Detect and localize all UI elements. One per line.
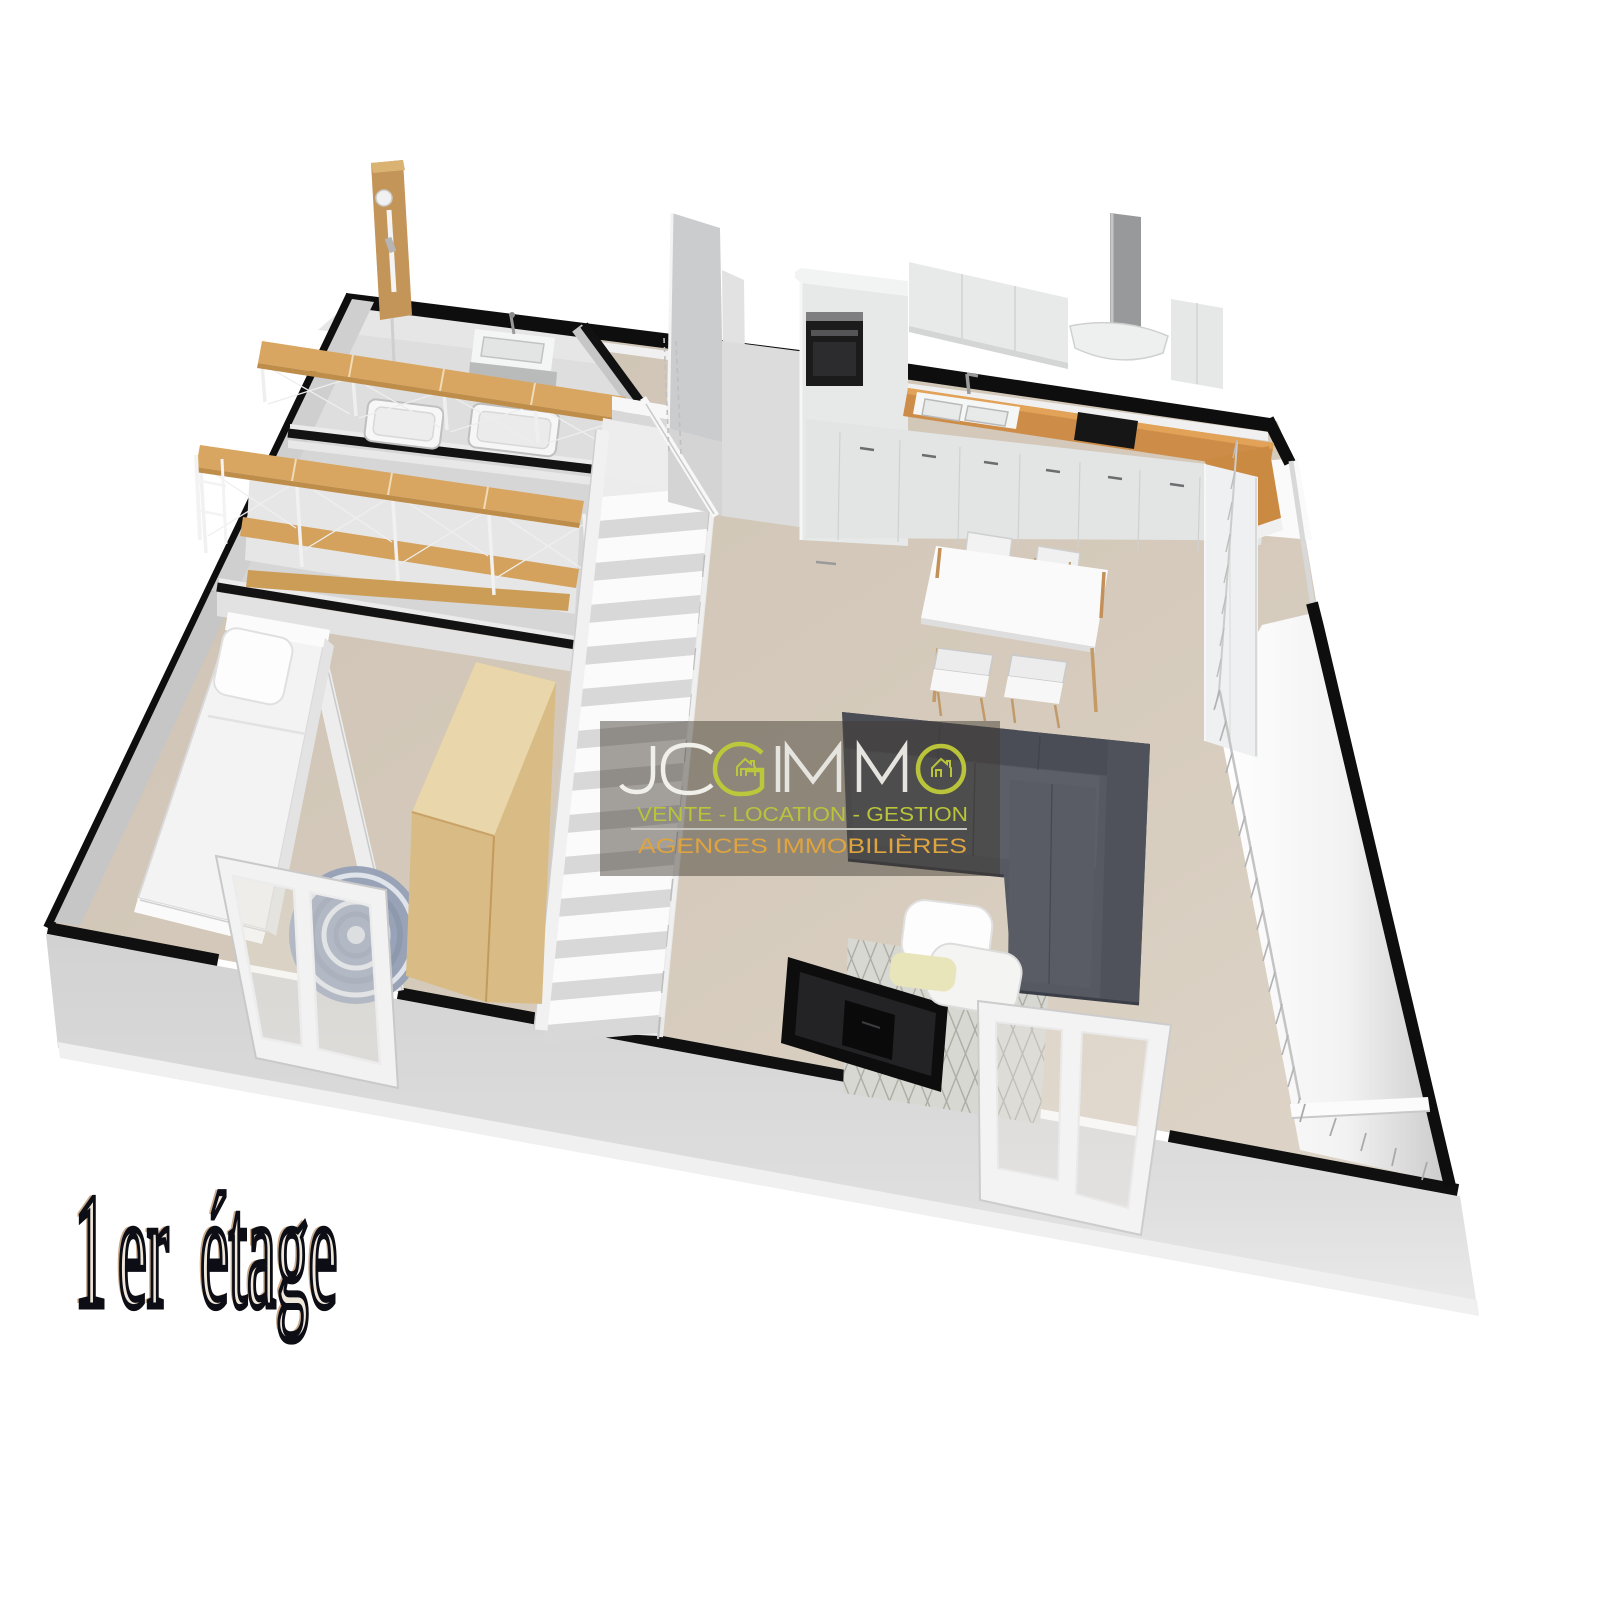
svg-text:VENTE - LOCATION - GESTION: VENTE - LOCATION - GESTION bbox=[637, 804, 968, 826]
svg-text:AGENCES IMMOBILIÈRES: AGENCES IMMOBILIÈRES bbox=[638, 835, 967, 858]
